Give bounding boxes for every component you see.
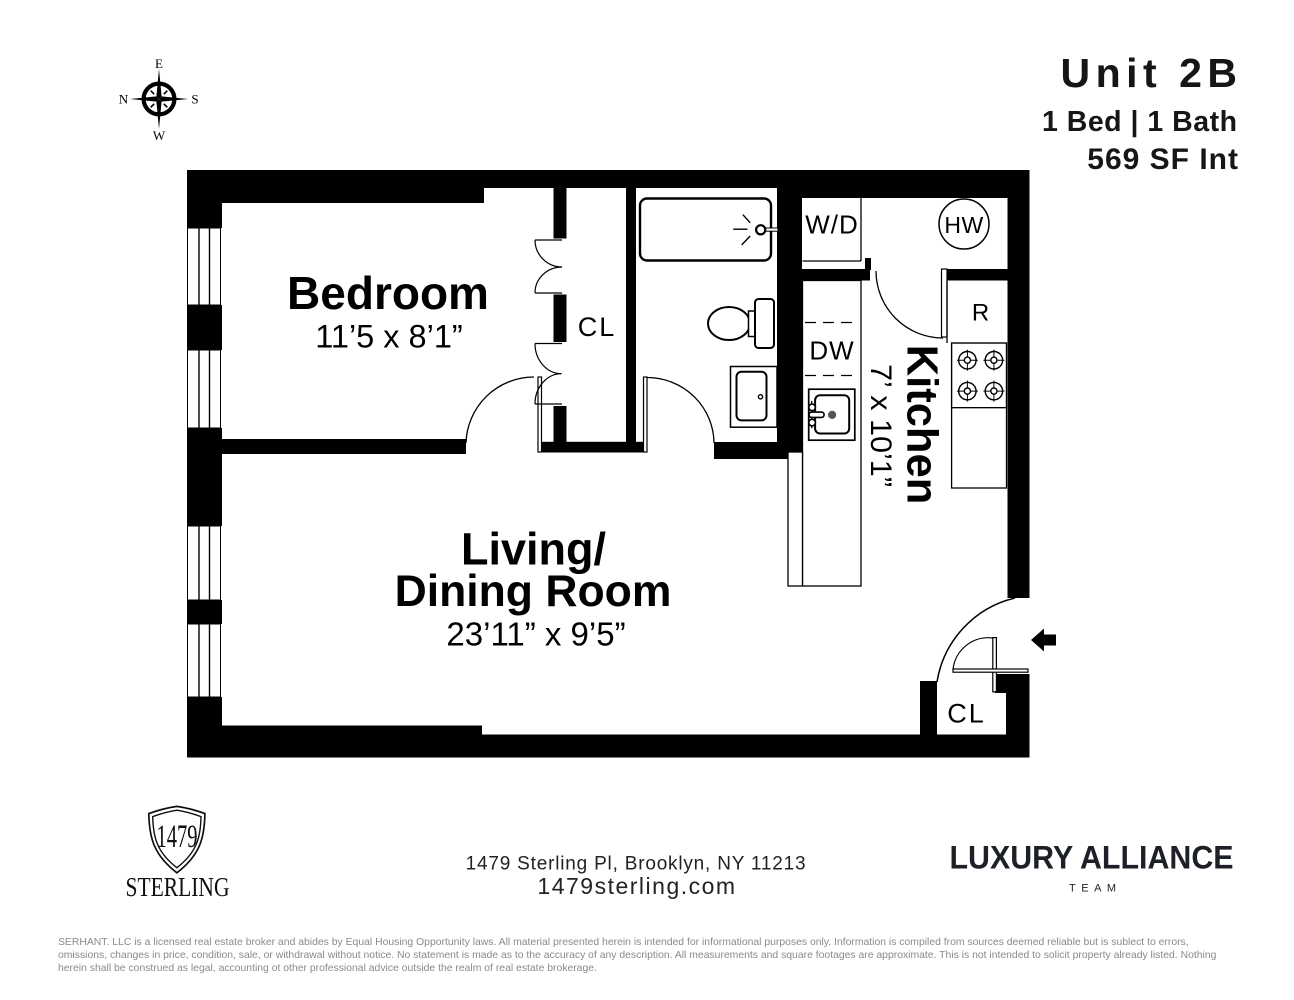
svg-text:SERHANT. LLC is a licensed rea: SERHANT. LLC is a licensed real estate b… bbox=[58, 937, 1189, 948]
svg-text:STERLING: STERLING bbox=[126, 872, 230, 902]
svg-text:Bedroom: Bedroom bbox=[287, 267, 489, 319]
svg-text:R: R bbox=[972, 300, 989, 327]
svg-text:DW: DW bbox=[809, 336, 854, 366]
svg-text:W: W bbox=[153, 128, 166, 143]
svg-text:Unit 2B: Unit 2B bbox=[1061, 50, 1243, 96]
svg-text:E: E bbox=[155, 56, 163, 71]
svg-text:1 Bed | 1 Bath: 1 Bed | 1 Bath bbox=[1042, 106, 1238, 138]
svg-text:TEAM: TEAM bbox=[1069, 883, 1122, 895]
svg-text:569 SF Int: 569 SF Int bbox=[1087, 143, 1239, 176]
svg-text:W/D: W/D bbox=[805, 210, 859, 240]
svg-text:Kitchen: Kitchen bbox=[898, 345, 946, 505]
svg-text:N: N bbox=[119, 92, 129, 107]
svg-text:Dining Room: Dining Room bbox=[395, 567, 672, 616]
svg-text:omissions, changes in price, c: omissions, changes in price, condition, … bbox=[58, 950, 1217, 961]
svg-text:1479: 1479 bbox=[157, 819, 198, 855]
svg-text:11’5 x 8’1”: 11’5 x 8’1” bbox=[315, 319, 463, 355]
svg-text:CL: CL bbox=[578, 312, 617, 342]
svg-text:herein shall be construed as l: herein shall be construed as legal, acco… bbox=[58, 963, 597, 974]
svg-text:1479 Sterling Pl, Brooklyn, NY: 1479 Sterling Pl, Brooklyn, NY 11213 bbox=[466, 854, 807, 875]
svg-text:23’11” x 9’5”: 23’11” x 9’5” bbox=[446, 616, 625, 653]
svg-text:CL: CL bbox=[947, 699, 986, 729]
svg-text:7’ x 10’1”: 7’ x 10’1” bbox=[864, 364, 897, 487]
svg-text:HW: HW bbox=[944, 212, 983, 238]
svg-text:S: S bbox=[191, 92, 198, 107]
svg-text:LUXURY ALLIANCE: LUXURY ALLIANCE bbox=[950, 840, 1234, 876]
svg-text:1479sterling.com: 1479sterling.com bbox=[537, 873, 736, 899]
